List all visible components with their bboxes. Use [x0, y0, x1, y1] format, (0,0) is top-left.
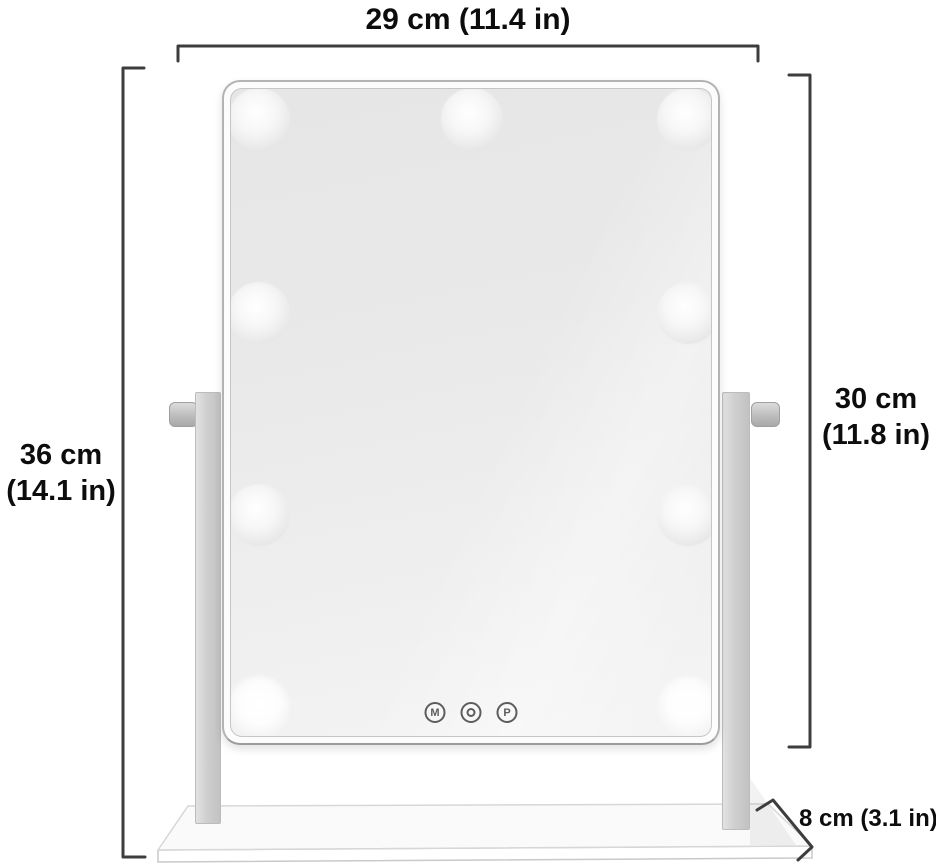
stand-post-left — [195, 392, 221, 824]
mirror-height-inches: (11.8 in) — [816, 417, 936, 453]
overall-height-value: 36 cm — [0, 437, 122, 473]
mirror-height-value: 30 cm — [816, 381, 936, 417]
light-bulb — [657, 676, 712, 737]
light-bulb — [657, 484, 712, 546]
light-bulb — [657, 88, 712, 150]
width-dimension-label: 29 cm (11.4 in) — [268, 3, 668, 37]
light-bulb — [230, 88, 290, 150]
light-bulb — [441, 88, 503, 150]
touch-button-row: M P — [425, 702, 518, 723]
power-button — [461, 702, 482, 723]
overall-height-dimension-bracket — [123, 68, 145, 857]
overall-height-inches: (14.1 in) — [0, 473, 122, 509]
base-top-surface — [158, 804, 812, 850]
light-bulb — [657, 282, 712, 344]
mirror-frame: M P — [222, 80, 720, 745]
mirror-sheen — [231, 89, 711, 736]
mirror-height-dimension-label: 30 cm (11.8 in) — [816, 381, 936, 453]
base-front-edge — [158, 846, 812, 862]
overall-height-dimension-label: 36 cm (14.1 in) — [0, 437, 122, 509]
base-shadow — [750, 778, 796, 845]
mirror-surface: M P — [230, 88, 712, 737]
mode-button: M — [425, 702, 446, 723]
stand-post-right — [722, 392, 750, 830]
width-dimension-bracket — [178, 46, 758, 61]
product-dimension-diagram: M P 29 cm (11.4 in) 36 cm (14.1 in) 30 c… — [0, 0, 936, 868]
hinge-knob-right — [751, 402, 780, 427]
light-bulb — [230, 676, 290, 737]
hinge-knob-left — [169, 402, 198, 427]
depth-dimension-label: 8 cm (3.1 in) — [799, 805, 936, 833]
preset-button: P — [497, 702, 518, 723]
mirror-height-dimension-bracket — [789, 75, 810, 747]
light-bulb — [230, 484, 290, 546]
power-ring-icon — [467, 708, 476, 717]
light-bulb — [230, 282, 290, 344]
